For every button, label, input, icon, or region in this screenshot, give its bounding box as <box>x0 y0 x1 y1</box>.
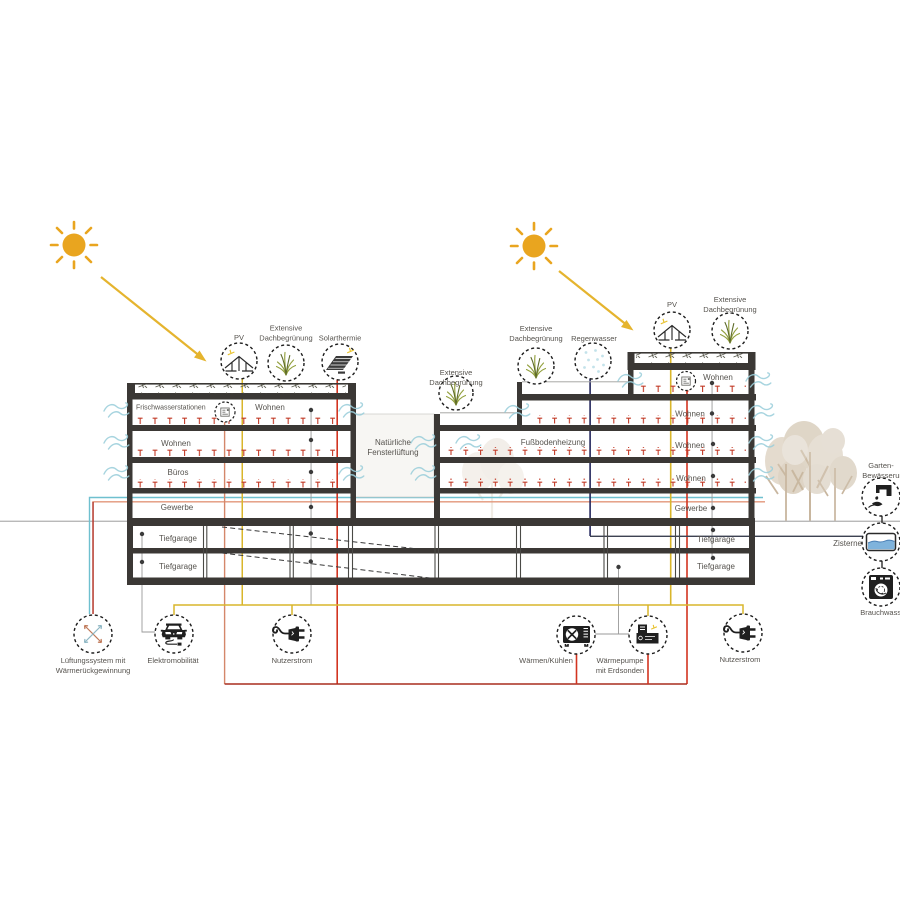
svg-text:Wohnen: Wohnen <box>675 410 705 419</box>
svg-text:Nutzerstrom: Nutzerstrom <box>720 655 761 664</box>
svg-text:Dachbegrünung: Dachbegrünung <box>429 378 482 387</box>
svg-text:Brauchwasser: Brauchwasser <box>860 608 900 617</box>
svg-text:mit Erdsonden: mit Erdsonden <box>596 666 644 675</box>
svg-text:Solarthermie: Solarthermie <box>319 334 362 343</box>
svg-text:Frischwasserstationen: Frischwasserstationen <box>136 405 206 412</box>
svg-text:PV: PV <box>667 300 677 309</box>
svg-text:Dachbegrünung: Dachbegrünung <box>509 334 562 343</box>
svg-text:Extensive: Extensive <box>520 324 553 333</box>
svg-text:Nutzerstrom: Nutzerstrom <box>272 656 313 665</box>
svg-text:Lüftungssystem mit: Lüftungssystem mit <box>61 656 127 665</box>
svg-text:Tiefgarage: Tiefgarage <box>159 534 198 543</box>
svg-text:Tiefgarage: Tiefgarage <box>697 562 736 571</box>
svg-text:PV: PV <box>234 333 244 342</box>
svg-text:Dachbegrünung: Dachbegrünung <box>259 334 312 343</box>
svg-text:Extensive: Extensive <box>440 368 473 377</box>
svg-text:Tiefgarage: Tiefgarage <box>697 535 736 544</box>
svg-text:Extensive: Extensive <box>714 295 747 304</box>
svg-text:Wohnen: Wohnen <box>161 439 191 448</box>
svg-text:Fensterlüftung: Fensterlüftung <box>367 448 418 457</box>
svg-text:Gewerbe: Gewerbe <box>675 504 708 513</box>
svg-text:Bewässerung: Bewässerung <box>862 471 900 480</box>
svg-text:Wärmerückgewinnung: Wärmerückgewinnung <box>56 666 131 675</box>
svg-text:Wohnen: Wohnen <box>676 474 706 483</box>
svg-text:Elektromobilität: Elektromobilität <box>147 656 199 665</box>
svg-text:Wohnen: Wohnen <box>675 441 705 450</box>
svg-text:Dachbegrünung: Dachbegrünung <box>703 305 756 314</box>
svg-text:Wohnen: Wohnen <box>255 403 285 412</box>
svg-text:Tiefgarage: Tiefgarage <box>159 562 198 571</box>
svg-text:Regenwasser: Regenwasser <box>571 334 617 343</box>
svg-text:Gewerbe: Gewerbe <box>161 503 194 512</box>
svg-text:Wohnen: Wohnen <box>703 373 733 382</box>
svg-text:Garten-: Garten- <box>868 461 894 470</box>
svg-text:Wärmepumpe: Wärmepumpe <box>596 656 643 665</box>
svg-text:Zisterne: Zisterne <box>833 539 862 548</box>
svg-text:Natürliche: Natürliche <box>375 438 412 447</box>
svg-text:Extensive: Extensive <box>270 324 303 333</box>
svg-text:Wärmen/Kühlen: Wärmen/Kühlen <box>519 656 573 665</box>
svg-text:Büros: Büros <box>168 468 189 477</box>
svg-text:Fußbodenheizung: Fußbodenheizung <box>521 438 586 447</box>
